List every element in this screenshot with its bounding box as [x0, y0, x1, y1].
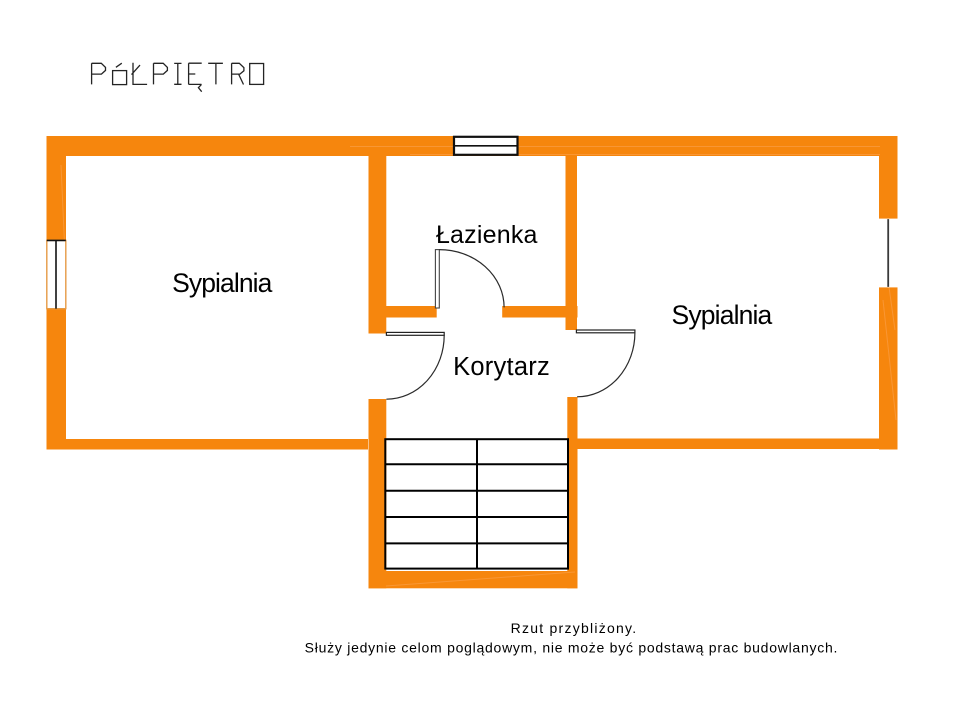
svg-text:Sypialnia: Sypialnia: [172, 268, 273, 298]
svg-text:Sypialnia: Sypialnia: [672, 300, 773, 330]
svg-text:Korytarz: Korytarz: [453, 353, 550, 381]
svg-text:Rzut przybliżony.: Rzut przybliżony.: [511, 620, 638, 636]
svg-text:Łazienka: Łazienka: [436, 221, 538, 249]
svg-text:Służy jedynie celom poglądowym: Służy jedynie celom poglądowym, nie może…: [305, 640, 838, 656]
